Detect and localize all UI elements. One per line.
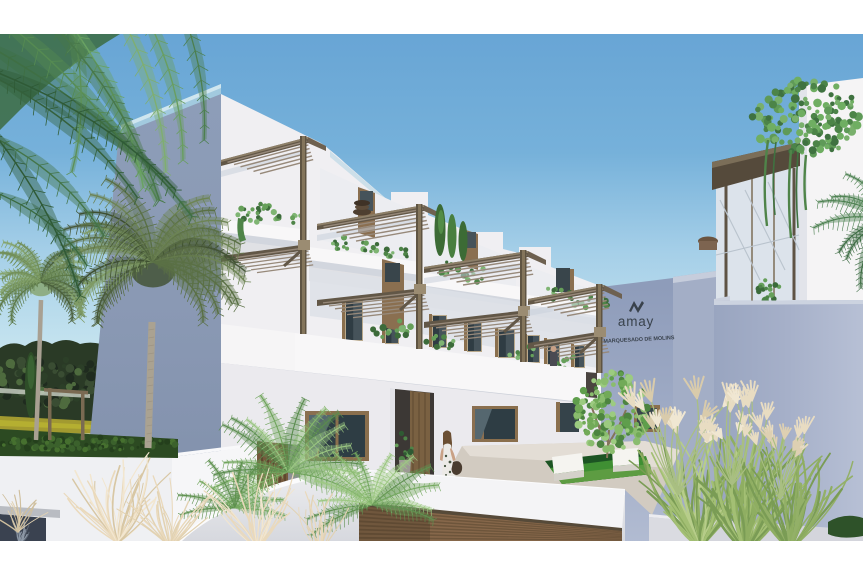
svg-text:amay: amay (618, 314, 654, 329)
